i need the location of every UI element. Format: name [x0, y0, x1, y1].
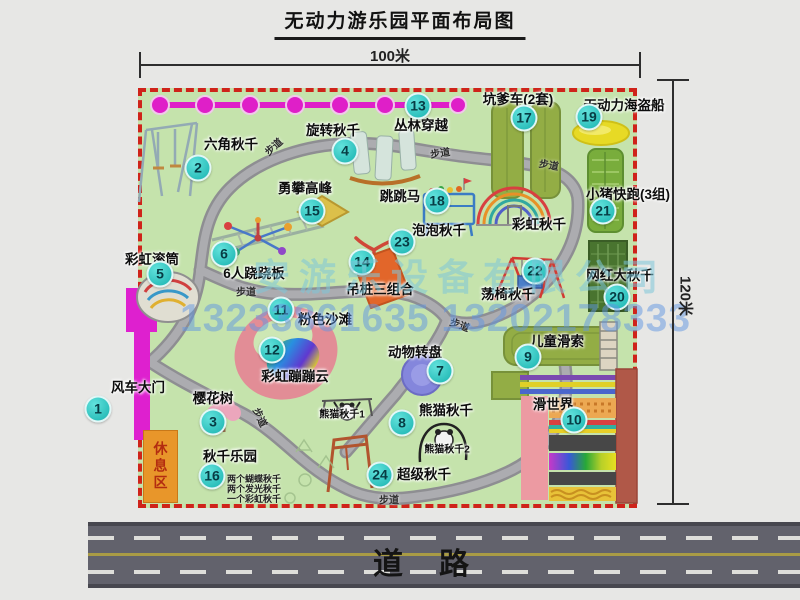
dimension-tick-left	[139, 52, 141, 78]
park-area	[138, 88, 637, 508]
park-layout-map: 无动力游乐园平面布局图 100米 120米	[0, 0, 800, 600]
page-title: 无动力游乐园平面布局图	[274, 6, 525, 40]
dimension-line-height	[672, 80, 674, 505]
rest-area-label: 休息区	[151, 441, 171, 492]
dimension-height-label: 120米	[676, 276, 697, 316]
dimension-tick-bottom	[657, 503, 689, 505]
road-label: 道路	[373, 539, 505, 583]
attraction-badge-1: 1	[85, 396, 112, 423]
road: 道路	[88, 522, 800, 588]
rest-area: 休息区	[143, 430, 178, 503]
dimension-tick-right	[639, 52, 641, 78]
dimension-width-label: 100米	[370, 45, 410, 66]
dimension-tick-top	[657, 79, 689, 81]
